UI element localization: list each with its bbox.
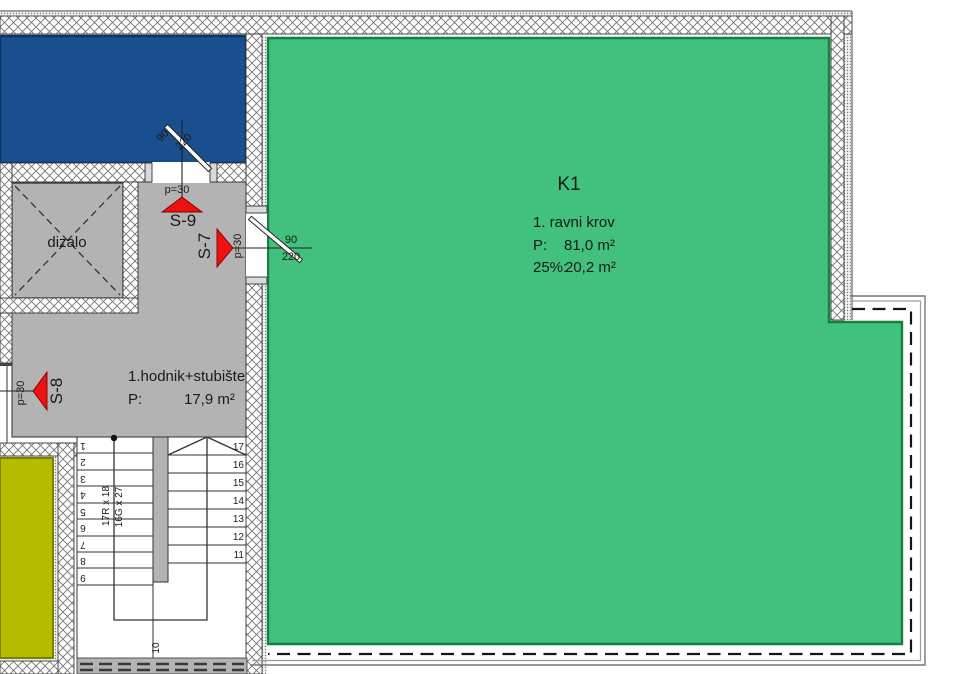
stair-goings-text: 16G x 27 — [114, 480, 126, 534]
tread-number-12: 12 — [227, 531, 244, 544]
room-k1-pct-value: 20,2 m² — [565, 260, 616, 275]
room-k1-pct-label: 25%: — [533, 260, 567, 275]
room-hodnik-area-value: 17,9 m² — [184, 392, 235, 407]
stair-core-wall — [153, 437, 168, 582]
section-s7-label: S-7 — [195, 225, 213, 267]
tread-number-15: 15 — [227, 477, 244, 490]
tread-number-17: 17 — [227, 441, 244, 454]
tread-number-9: 9 — [77, 571, 89, 584]
right-door-width: 90 — [279, 234, 303, 246]
room-hodnik-area-label: P: — [128, 392, 142, 407]
room-k1-area-label: P: — [533, 238, 547, 253]
tread-number-6: 6 — [77, 521, 89, 534]
tread-number-14: 14 — [227, 495, 244, 508]
tread-number-13: 13 — [227, 513, 244, 526]
room-k1-subtitle: 1. ravni krov — [533, 215, 615, 230]
tread-number-11: 11 — [227, 549, 244, 562]
stair-risers-text: 17R x 18 — [101, 479, 113, 533]
tread-number-1: 1 — [77, 439, 89, 452]
section-s8-slope: p=30 — [15, 375, 27, 411]
section-s8-label: S-8 — [47, 370, 65, 412]
tread-number-16: 16 — [227, 459, 244, 472]
room-k1-title: K1 — [549, 174, 589, 194]
misc-lines — [0, 363, 12, 443]
stair-bottom-strip — [77, 658, 247, 674]
section-s7-slope: p=30 — [232, 228, 244, 264]
tread-number-10: 10 — [151, 639, 163, 657]
floorplan-graphics — [0, 0, 960, 674]
yellow-room — [0, 458, 53, 658]
tread-number-7: 7 — [77, 538, 89, 551]
roof-k1-area — [268, 38, 902, 644]
tread-number-2: 2 — [77, 455, 89, 468]
tread-number-3: 3 — [77, 472, 89, 485]
walking-line-start-dot — [111, 435, 117, 441]
rooms — [0, 36, 902, 658]
section-s9-slope: p=30 — [161, 185, 193, 196]
tread-number-5: 5 — [77, 505, 89, 518]
tread-number-8: 8 — [77, 554, 89, 567]
floor-plan: dizalo K1 1. ravni krov P: 81,0 m² 25%: … — [0, 0, 960, 674]
room-hodnik-title: 1.hodnik+stubište — [128, 369, 245, 384]
terrace-blue-room — [0, 36, 246, 163]
elevator-label: dizalo — [27, 234, 107, 250]
room-k1-area-value: 81,0 m² — [564, 238, 615, 253]
tread-number-4: 4 — [77, 488, 89, 501]
right-door-height: 220 — [276, 251, 306, 263]
